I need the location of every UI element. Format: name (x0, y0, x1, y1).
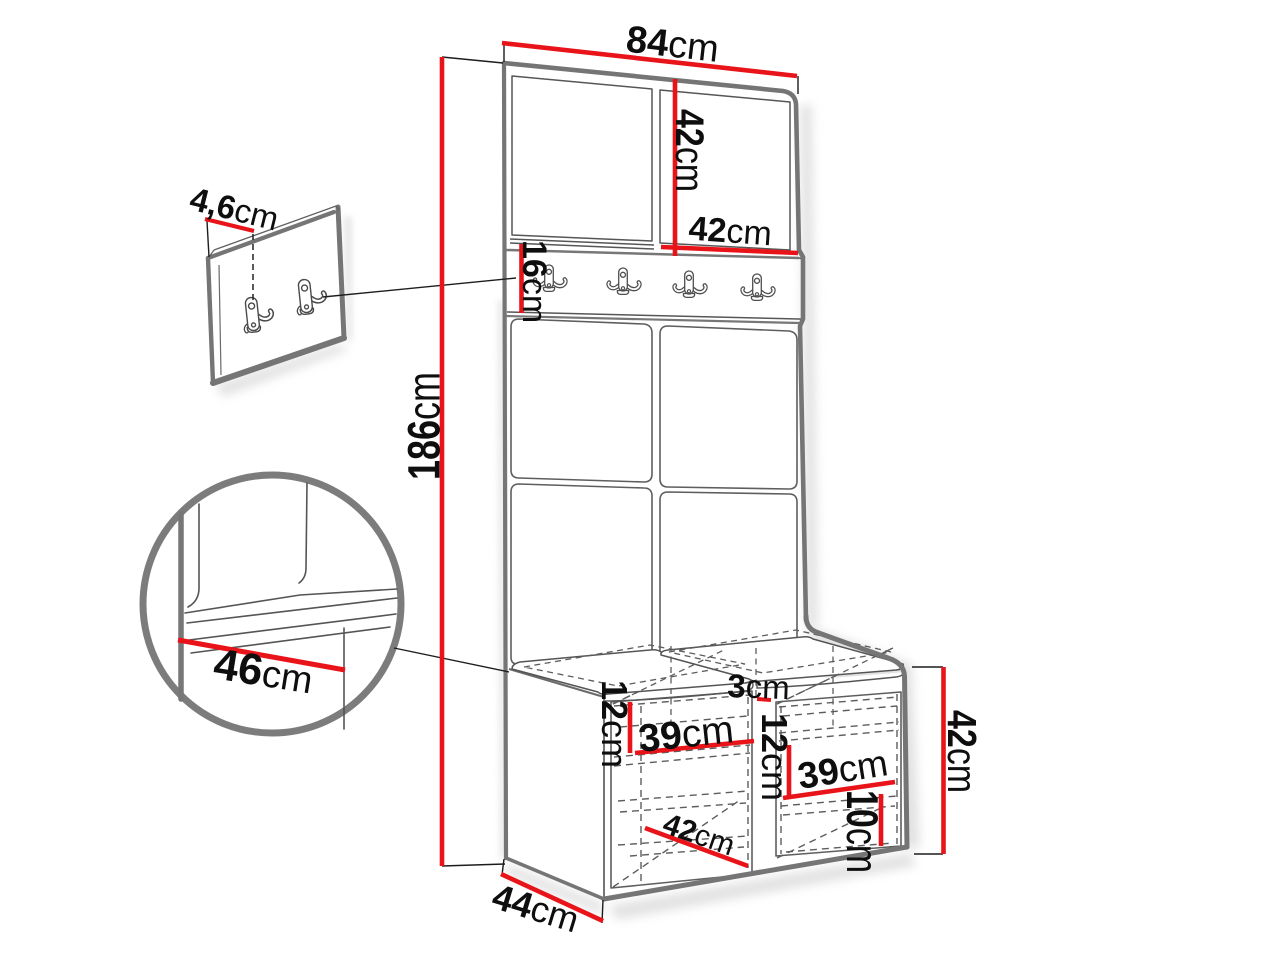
svg-text:10cm: 10cm (837, 790, 887, 873)
svg-text:42cm: 42cm (939, 710, 985, 793)
svg-text:42cm: 42cm (667, 109, 712, 192)
svg-text:42cm: 42cm (687, 210, 773, 254)
svg-text:3cm: 3cm (727, 667, 791, 706)
svg-text:186cm: 186cm (399, 372, 450, 480)
svg-text:16cm: 16cm (515, 240, 553, 323)
svg-text:12cm: 12cm (754, 713, 795, 801)
svg-text:12cm: 12cm (594, 680, 635, 768)
